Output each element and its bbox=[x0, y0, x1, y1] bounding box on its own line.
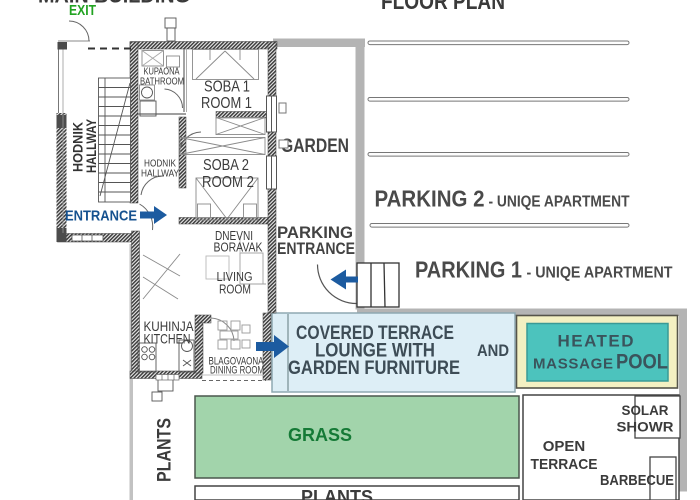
svg-text:HALLWAY: HALLWAY bbox=[141, 169, 179, 180]
svg-text:OPEN: OPEN bbox=[543, 438, 586, 455]
svg-text:EXIT: EXIT bbox=[69, 3, 96, 19]
svg-text:POOL: POOL bbox=[616, 351, 668, 374]
svg-text:ROOM 2: ROOM 2 bbox=[202, 174, 254, 191]
svg-text:GRASS: GRASS bbox=[288, 425, 352, 445]
svg-text:- UNIQE APARTMENT: - UNIQE APARTMENT bbox=[489, 194, 630, 211]
svg-text:MAIN BUILDING: MAIN BUILDING bbox=[38, 0, 190, 8]
svg-text:ENTRANCE: ENTRANCE bbox=[277, 239, 355, 258]
svg-text:GARDEN FURNITURE: GARDEN FURNITURE bbox=[288, 358, 460, 379]
svg-text:BORAVAK: BORAVAK bbox=[214, 241, 264, 255]
svg-text:BATHROOM: BATHROOM bbox=[140, 76, 184, 88]
svg-text:SHOWR: SHOWR bbox=[617, 419, 674, 435]
svg-text:PARKING 2: PARKING 2 bbox=[375, 186, 485, 212]
svg-text:DINING ROOM: DINING ROOM bbox=[210, 365, 264, 377]
svg-text:SOBA 1: SOBA 1 bbox=[204, 79, 250, 96]
svg-text:MASSAGE: MASSAGE bbox=[533, 356, 613, 373]
svg-text:FLOOR PLAN: FLOOR PLAN bbox=[381, 0, 505, 14]
svg-text:ENTRANCE: ENTRANCE bbox=[65, 208, 137, 225]
svg-text:HALLWAY: HALLWAY bbox=[84, 119, 99, 173]
svg-text:GARDEN: GARDEN bbox=[281, 136, 349, 157]
svg-text:TERRACE: TERRACE bbox=[531, 456, 598, 473]
svg-text:ROOM: ROOM bbox=[219, 282, 251, 297]
svg-text:PARKING 1: PARKING 1 bbox=[415, 257, 522, 283]
svg-text:ROOM 1: ROOM 1 bbox=[201, 95, 252, 112]
svg-text:PLANTS: PLANTS bbox=[301, 487, 373, 500]
svg-text:SOBA 2: SOBA 2 bbox=[203, 157, 249, 174]
svg-text:- UNIQE APARTMENT: - UNIQE APARTMENT bbox=[527, 265, 673, 282]
svg-text:PLANTS: PLANTS bbox=[155, 418, 176, 482]
svg-text:KITCHEN: KITCHEN bbox=[144, 331, 191, 347]
svg-text:BARBECUE: BARBECUE bbox=[600, 472, 674, 489]
svg-text:SOLAR: SOLAR bbox=[622, 402, 669, 418]
svg-text:AND: AND bbox=[477, 341, 509, 360]
